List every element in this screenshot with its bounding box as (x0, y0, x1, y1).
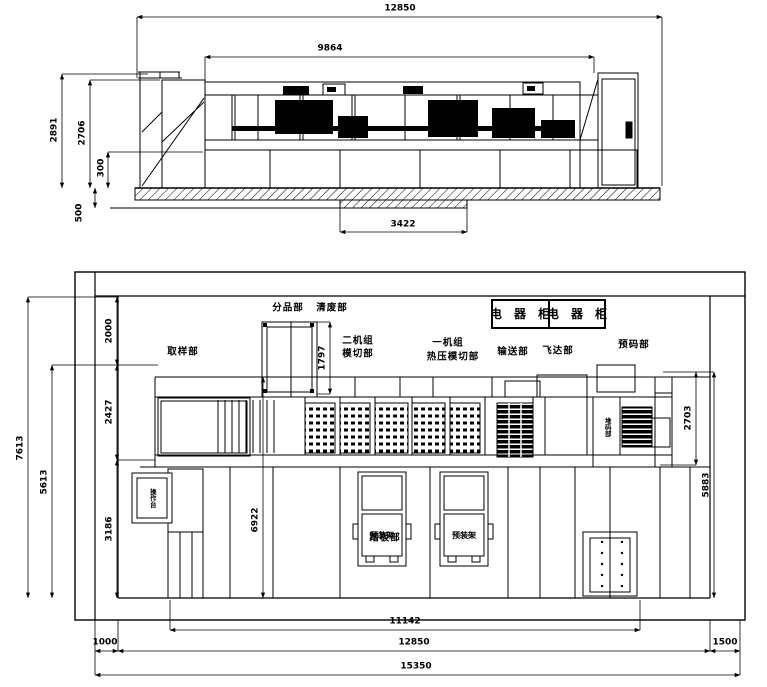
unit1-label-line1: 一机组 (432, 338, 464, 348)
unit2-label-line2: 模切部 (342, 349, 374, 359)
dim-overall-height: 2891 (51, 117, 60, 142)
dim-machine-width: 2427 (106, 399, 115, 424)
dim-machine-length-bottom: 12850 (398, 639, 429, 648)
dim-machine-length: 9864 (317, 45, 342, 54)
unit1-label-line2: 热压模切部 (427, 352, 480, 362)
dim-stacker-width: 2703 (685, 405, 694, 430)
dim-base-height: 300 (98, 159, 107, 178)
prestacking-section-label: 预码部 (618, 340, 650, 350)
waste-removal-section-label: 清废部 (316, 303, 348, 313)
preload-rack-label-2: 预装架 (452, 532, 476, 540)
elevation-view (110, 72, 660, 208)
drawing-linework (0, 0, 767, 687)
sampling-section-label: 取样部 (167, 347, 199, 357)
preload-rack-label-1: 预装架 (370, 532, 394, 540)
feeder-section-label: 飞达部 (542, 346, 574, 356)
dim-overall-length-bottom: 15350 (400, 663, 431, 672)
dim-inner-length: 11142 (389, 618, 420, 627)
preload-rack-1 (353, 472, 411, 566)
dim-right-width: 5883 (703, 472, 712, 497)
dim-overall-width: 7613 (17, 435, 26, 460)
stacking-section-label: 堆码部 (604, 417, 611, 437)
dim-machine-height: 2706 (79, 120, 88, 145)
sorting-section-label: 分品部 (272, 303, 304, 313)
preload-rack-2 (435, 472, 493, 566)
conveying-section-label: 输送部 (497, 347, 529, 357)
dim-right-margin: 1500 (712, 639, 737, 648)
engineering-drawing: 12850 9864 3422 2891 2706 300 500 2000 2… (0, 0, 767, 687)
electrical-cabinet-label-2: 电 器 柜 (547, 308, 611, 320)
dim-front-area: 3186 (106, 516, 115, 541)
unit2-label-line1: 二机组 (342, 336, 374, 346)
dim-overall-length-top: 12850 (384, 5, 415, 14)
dim-floor-width: 6922 (252, 507, 261, 532)
dim-top-margin: 2000 (106, 318, 115, 343)
dim-work-width: 5613 (41, 469, 50, 494)
dim-pit-length: 3422 (390, 221, 415, 230)
dim-pit-depth: 500 (76, 204, 85, 223)
dim-left-margin: 1000 (92, 639, 117, 648)
plan-view (75, 272, 745, 620)
electrical-cabinet-label-1: 电 器 柜 (490, 308, 554, 320)
console-label: 操作台 (149, 488, 156, 508)
dim-tower-width: 1797 (319, 345, 328, 370)
